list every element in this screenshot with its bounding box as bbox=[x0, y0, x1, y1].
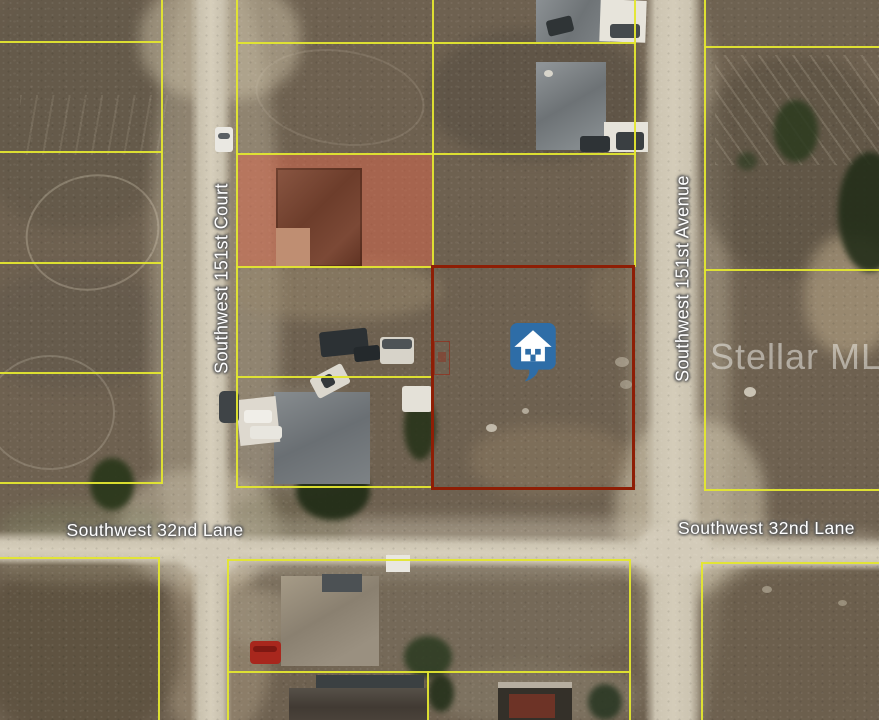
survey-mark bbox=[438, 352, 446, 362]
parcel-line bbox=[236, 376, 434, 378]
tree bbox=[90, 458, 134, 510]
parcel-line bbox=[0, 482, 162, 484]
parcel-line bbox=[236, 266, 434, 268]
parcel-line bbox=[432, 0, 434, 267]
ground-spot bbox=[544, 70, 553, 77]
house-roof bbox=[274, 392, 370, 484]
parcel-line bbox=[0, 151, 162, 153]
car bbox=[382, 339, 412, 349]
parcel-line bbox=[0, 262, 162, 264]
parcel-line bbox=[701, 562, 703, 720]
car bbox=[402, 386, 432, 412]
subject-property-pin[interactable] bbox=[509, 322, 557, 382]
terrain-patch bbox=[695, 555, 879, 720]
street-label-sw-151st-avenue: Southwest 151st Avenue bbox=[673, 154, 694, 404]
tree bbox=[774, 100, 818, 162]
ground-spot bbox=[762, 586, 772, 593]
watermark: Stellar MLS bbox=[710, 336, 879, 378]
parcel-line bbox=[704, 0, 706, 491]
car bbox=[616, 132, 644, 150]
tire-tracks bbox=[20, 95, 170, 155]
parcel-line bbox=[236, 486, 434, 488]
parcel-line bbox=[227, 559, 229, 720]
house-pin-icon bbox=[509, 322, 557, 382]
parcel-line bbox=[236, 42, 636, 44]
parcel-line bbox=[704, 269, 879, 271]
truck bbox=[250, 641, 281, 664]
parcel-line bbox=[227, 671, 631, 673]
map-canvas[interactable]: Southwest 151st Court Southwest 151st Av… bbox=[0, 0, 879, 720]
car bbox=[218, 133, 230, 139]
car bbox=[580, 136, 610, 152]
house-yard-notch bbox=[276, 228, 310, 267]
car bbox=[244, 410, 272, 423]
house-roof bbox=[289, 688, 428, 720]
street-label-sw-151st-court: Southwest 151st Court bbox=[212, 154, 233, 404]
house-roof bbox=[316, 675, 424, 689]
ground-spot bbox=[838, 600, 847, 606]
car bbox=[250, 426, 282, 439]
shed bbox=[386, 555, 410, 572]
parcel-line bbox=[629, 559, 631, 720]
tree bbox=[737, 152, 757, 170]
parcel-line bbox=[236, 153, 636, 155]
car bbox=[215, 127, 233, 152]
parcel-line bbox=[427, 671, 429, 720]
parcel-line bbox=[704, 489, 879, 491]
parcel-line bbox=[634, 0, 636, 267]
ground-spot bbox=[744, 387, 756, 397]
street-label-sw-32nd-lane-east: Southwest 32nd Lane bbox=[678, 518, 879, 539]
terrain-patch bbox=[230, 260, 440, 320]
parcel-line bbox=[161, 0, 163, 484]
house-roof bbox=[509, 694, 555, 718]
parcel-line bbox=[704, 46, 879, 48]
parcel-line bbox=[0, 557, 160, 559]
parcel-line bbox=[701, 562, 879, 564]
house-roof bbox=[322, 574, 362, 592]
tree bbox=[428, 674, 454, 712]
car bbox=[353, 345, 380, 363]
parcel-line bbox=[0, 372, 162, 374]
parcel-line bbox=[158, 557, 160, 720]
parcel-line bbox=[0, 41, 162, 43]
parcel-line bbox=[236, 0, 238, 488]
tree bbox=[588, 684, 622, 720]
parcel-line bbox=[227, 559, 631, 561]
truck bbox=[253, 646, 277, 652]
street-label-sw-32nd-lane-west: Southwest 32nd Lane bbox=[50, 520, 260, 541]
